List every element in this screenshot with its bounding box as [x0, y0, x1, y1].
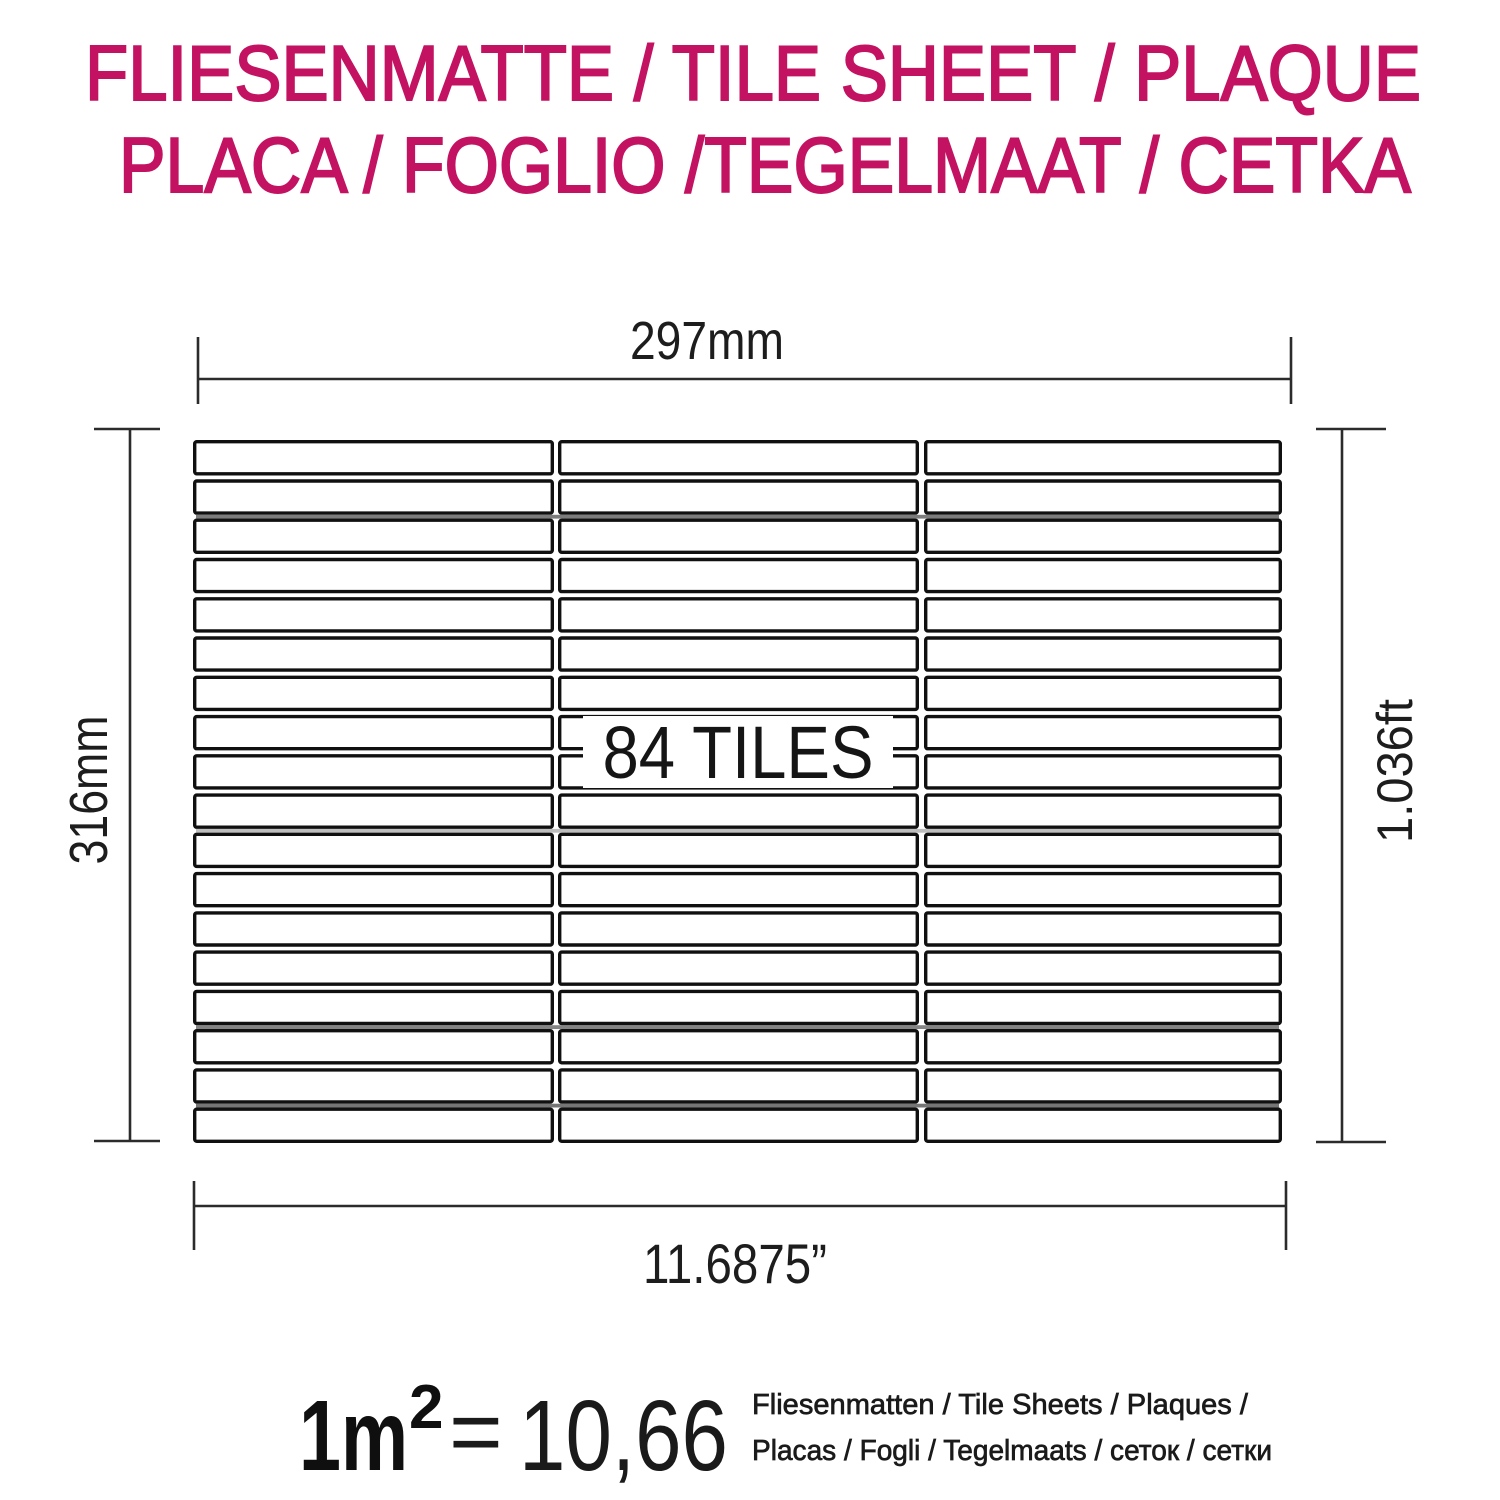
svg-text:=: = — [449, 1381, 503, 1483]
svg-text:Placas / Fogli / Tegelmaats /: Placas / Fogli / Tegelmaats / сеток / се… — [752, 1435, 1272, 1467]
svg-text:11.6875”: 11.6875” — [643, 1232, 827, 1295]
svg-text:1m: 1m — [299, 1380, 408, 1492]
svg-text:297mm: 297mm — [630, 311, 784, 371]
svg-text:PLACA / FOGLIO /TEGELMAAT / CE: PLACA / FOGLIO /TEGELMAAT / CETKA — [119, 121, 1411, 209]
svg-text:Fliesenmatten / Tile Sheets /: Fliesenmatten / Tile Sheets / Plaques / — [752, 1389, 1249, 1421]
svg-text:316mm: 316mm — [59, 716, 119, 865]
svg-text:FLIESENMATTE / TILE SHEET / PL: FLIESENMATTE / TILE SHEET / PLAQUE — [85, 29, 1421, 117]
svg-text:10,66: 10,66 — [519, 1380, 728, 1492]
svg-text:2: 2 — [409, 1373, 443, 1442]
svg-text:1.036ft: 1.036ft — [1367, 699, 1423, 843]
svg-text:84 TILES: 84 TILES — [603, 711, 874, 794]
